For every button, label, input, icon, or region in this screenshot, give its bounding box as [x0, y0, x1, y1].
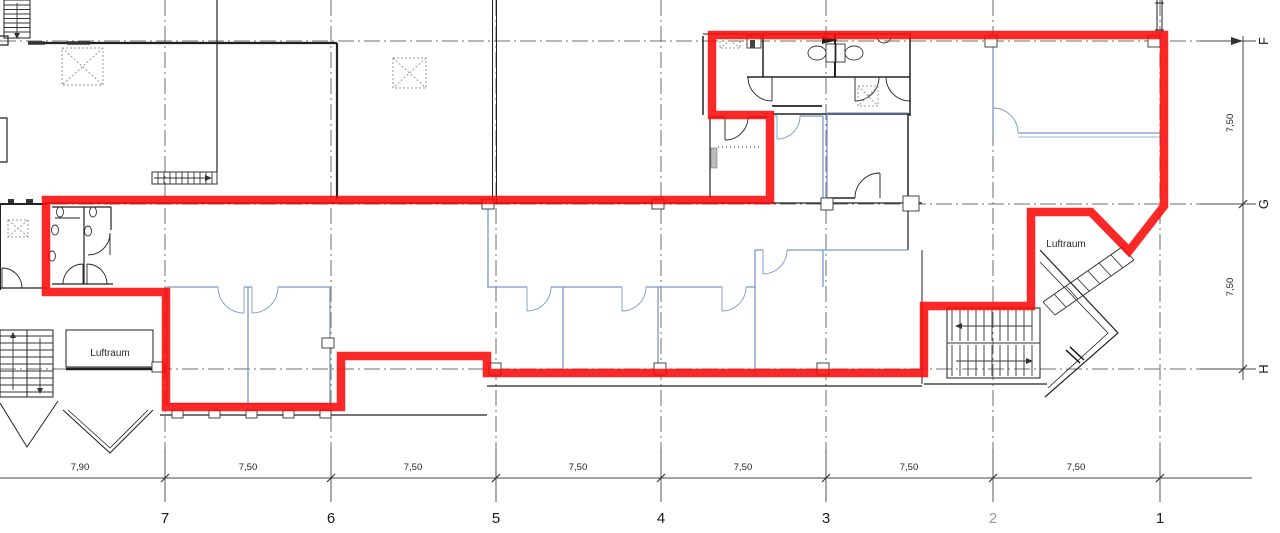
- building-walls: [0, 0, 1164, 453]
- dim-bottom-2: 7,50: [239, 462, 258, 473]
- dim-bottom-1: 7,90: [71, 462, 90, 473]
- wcL-door-2: [87, 264, 107, 284]
- roomA-door-1: [527, 287, 551, 311]
- dim-right-1: 7,50: [1225, 114, 1236, 133]
- dim-bottom-5: 7,50: [734, 462, 753, 473]
- roomD-walls: [167, 287, 330, 404]
- grid-row-label-G: G: [1256, 199, 1271, 209]
- skylight-box-3: [858, 86, 878, 106]
- skylight-box-4: [8, 220, 28, 237]
- wcL-fixture-2: [52, 225, 59, 235]
- wc-door-2: [855, 77, 879, 101]
- grid-col-label-1: 1: [1156, 510, 1164, 527]
- dim-bottom-4: 7,50: [569, 462, 588, 473]
- skylight-box-1: [62, 48, 103, 85]
- wc-tank-right: [836, 44, 845, 62]
- grid-col-label-7: 7: [161, 510, 169, 527]
- roomB-door-2: [855, 173, 880, 198]
- grid-col-label-2: 2: [989, 510, 997, 527]
- floor-plan-page: Luftraum Luftraum 7,90 7,50 7,50 7,50 7,…: [0, 0, 1280, 533]
- dim-right-2: 7,50: [1225, 278, 1236, 297]
- roomA-door-4: [763, 250, 787, 274]
- roomB-blue-walls: [775, 116, 823, 200]
- shaft-marker: [711, 148, 717, 168]
- dim-bottom-3: 7,50: [404, 462, 423, 473]
- skylight-boxes: [8, 33, 878, 237]
- grid-row-label-F: F: [1256, 37, 1271, 45]
- roof-v-1: [0, 401, 58, 447]
- dim-bottom-6: 7,50: [900, 462, 919, 473]
- stair-strip: [152, 172, 217, 184]
- stair-bottom-left: [0, 330, 53, 397]
- dimension-lines: [0, 36, 1256, 502]
- bay-outline-outer: [1040, 250, 1118, 397]
- roof-v-2-inner: [68, 410, 148, 448]
- grid-lines: [0, 0, 1252, 452]
- floor-plan-canvas: Luftraum Luftraum 7,90 7,50 7,50 7,50 7,…: [0, 0, 1280, 533]
- wc-tank-left: [826, 44, 835, 62]
- roomA-partitions: [563, 250, 823, 372]
- bay-door-leaf: [1066, 347, 1084, 363]
- roomD-door-1: [218, 287, 244, 313]
- dim-bottom-7: 7,50: [1067, 462, 1086, 473]
- wc-faucet: [750, 40, 755, 48]
- luftraum-right-label: Luftraum: [1046, 239, 1085, 250]
- wcL-fixture-1: [57, 207, 64, 217]
- luftraum-left-label: Luftraum: [90, 348, 129, 359]
- wcL-door-1: [63, 264, 83, 284]
- wc-door-3: [886, 77, 910, 101]
- dimension-arrowhead: [1231, 37, 1243, 45]
- roomC-door: [993, 108, 1018, 133]
- stair-top-left: [4, 0, 30, 39]
- roomB-right-blue: [827, 113, 908, 198]
- grid-row-label-H: H: [1256, 364, 1271, 373]
- roomB-door-1: [725, 117, 748, 140]
- red-selection-outline: [46, 35, 1164, 407]
- right-dimension-ticks: [1200, 41, 1256, 369]
- grid-col-label-6: 6: [327, 510, 335, 527]
- wc-door-1: [748, 77, 772, 101]
- roomD-door-2: [252, 287, 278, 313]
- partition-walls-blue: [167, 45, 1160, 404]
- wcL-fixture-4: [90, 207, 97, 217]
- wall-left-edge-upper: [0, 118, 7, 162]
- roomA-door-3: [722, 287, 746, 311]
- roomB-blue-door: [777, 116, 800, 139]
- wcL-door-3: [88, 233, 110, 255]
- wc-bowl-left: [808, 46, 826, 60]
- grid-col-label-4: 4: [657, 510, 665, 527]
- fixtures: [49, 36, 892, 261]
- wcL-fixture-5: [85, 226, 92, 236]
- skylight-box-2: [393, 58, 426, 88]
- grid-col-label-3: 3: [822, 510, 830, 527]
- wc-bowl-right: [845, 46, 863, 60]
- roomA-door-2: [622, 287, 646, 311]
- door-left-edge: [2, 268, 22, 288]
- stair-diagonal: [1043, 247, 1134, 315]
- text-labels: Luftraum Luftraum 7,90 7,50 7,50 7,50 7,…: [71, 37, 1271, 527]
- grid-col-label-5: 5: [492, 510, 500, 527]
